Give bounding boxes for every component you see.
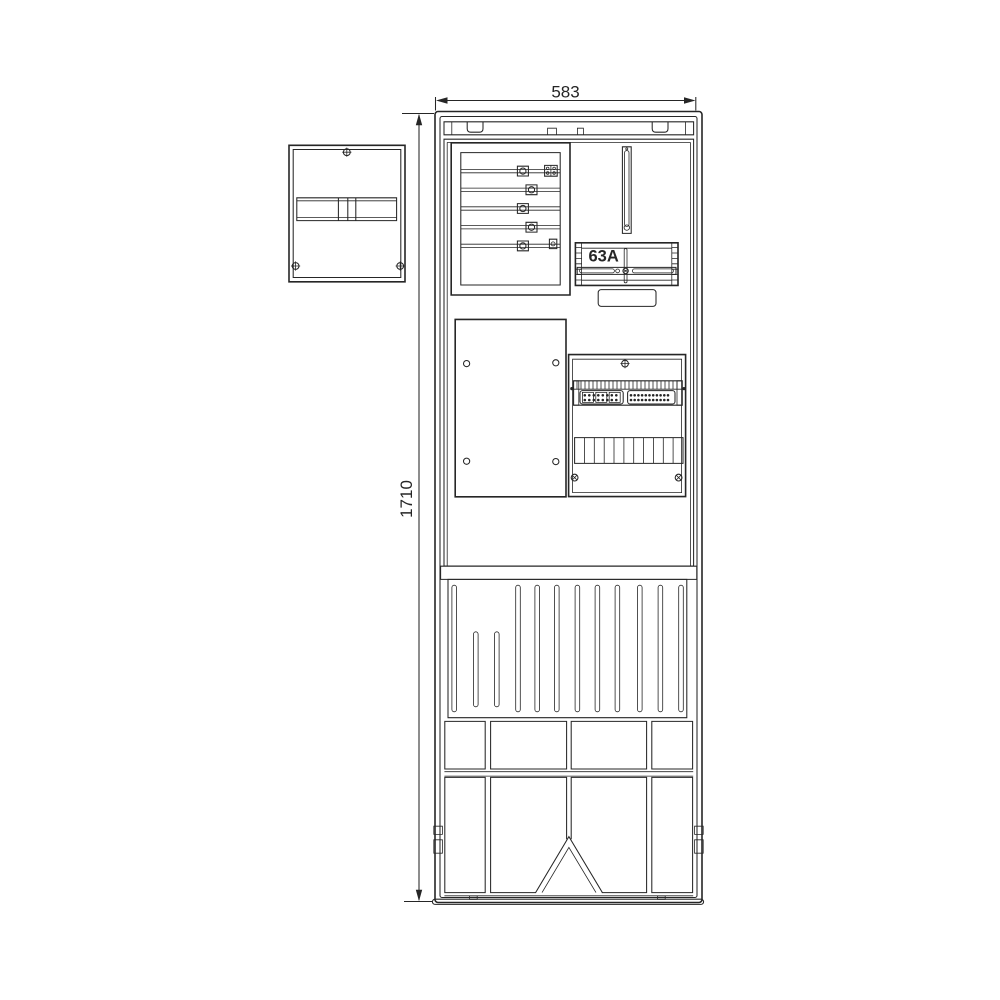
- top-band-center-steps: [548, 128, 584, 135]
- meter-window-slot: [622, 147, 631, 234]
- strip-mount-screw: [682, 387, 685, 390]
- actuator-pin: [616, 269, 620, 273]
- knockout-panel: [491, 721, 567, 769]
- height-dimension-label: 1710: [397, 480, 416, 518]
- knockout-panel: [445, 777, 485, 892]
- distribution-panel-inner: [573, 359, 682, 492]
- meter-cabinet-technical-drawing: 583 1710: [0, 0, 1000, 1000]
- vent-slot-short: [495, 632, 500, 707]
- top-band-ticks: [452, 122, 686, 135]
- vent-slot: [516, 585, 521, 712]
- mounting-plate: [455, 319, 566, 496]
- drawing-canvas: 583 1710: [0, 0, 1000, 1000]
- mounting-hole: [464, 361, 470, 367]
- vent-slot: [679, 585, 684, 712]
- width-dimension-label: 583: [551, 83, 579, 102]
- din-clamp-hole: [520, 168, 526, 174]
- distribution-panel-outer: [569, 355, 686, 497]
- top-profile-band: [444, 122, 694, 135]
- meter-cabinet: 63A: [432, 112, 703, 905]
- din-clamp-hole: [520, 205, 526, 211]
- din-window-inner-lines: [297, 201, 397, 218]
- terminal-comb-dividers: [585, 438, 674, 464]
- main-breaker-assembly: 63A: [575, 243, 678, 307]
- terminal-comb: [575, 438, 683, 464]
- vent-slot-short: [474, 632, 479, 707]
- slot-top-hole: [626, 148, 628, 150]
- din-window-dividers: [338, 198, 355, 221]
- actuator-center-dot: [625, 270, 627, 272]
- slot-outer: [622, 147, 631, 234]
- wall-box-inner-frame: [293, 150, 401, 278]
- meter-mounting-plate: [455, 319, 566, 496]
- din-window-outer: [297, 198, 397, 221]
- actuator-slot-left: [580, 269, 615, 273]
- slot-bottom-hole: [624, 225, 629, 230]
- vent-slot: [638, 585, 643, 712]
- height-arrow-down-icon: [416, 890, 422, 902]
- knockout-panel: [652, 777, 693, 892]
- mounting-hole: [464, 458, 470, 464]
- din-rail-panel: [451, 143, 570, 295]
- vent-slot: [535, 585, 540, 712]
- knockout-panel: [445, 721, 485, 769]
- distribution-panel: [569, 355, 686, 497]
- vent-top-band: [441, 566, 697, 579]
- strip-end-plate-left: [574, 381, 579, 405]
- vent-slot: [658, 585, 663, 712]
- strip-mount-screw: [570, 387, 573, 390]
- knockout-panel-center-right: [571, 777, 646, 892]
- breaker-lever: [624, 249, 627, 283]
- cabinet-inner-frame: [440, 117, 697, 898]
- actuator-slot-right: [632, 269, 673, 273]
- breaker-rating-label: 63A: [589, 248, 619, 266]
- connector-hole: [553, 167, 556, 170]
- wall-mounted-box: [289, 145, 405, 281]
- din-rails: [461, 169, 560, 247]
- connector-hole: [546, 167, 549, 170]
- width-arrow-left-icon: [436, 97, 448, 103]
- connector-block-right: [628, 391, 675, 404]
- cable-entry-triangle-outer: [536, 837, 603, 893]
- height-dimension: 1710: [397, 114, 434, 902]
- breaker-sub-cover: [598, 290, 656, 307]
- din-clamp-hole: [528, 187, 534, 193]
- wall-box-outer-frame: [289, 145, 405, 281]
- knockout-divider-band: [444, 772, 693, 776]
- vent-slot: [452, 585, 457, 712]
- knockout-panel-center-left: [491, 777, 567, 892]
- din-clamp-hole: [528, 224, 534, 230]
- cabinet-outer-frame: [435, 112, 702, 903]
- mounting-hole: [553, 360, 559, 366]
- knockout-panel: [652, 721, 693, 769]
- top-band-rect: [444, 122, 694, 135]
- vent-slot: [555, 585, 560, 712]
- screw-x-marks: [676, 475, 681, 480]
- top-band-notch-right: [652, 122, 668, 132]
- din-clamp-hole: [520, 243, 526, 249]
- height-arrow-up-icon: [416, 114, 422, 126]
- cable-entry-triangle-inner: [542, 847, 596, 892]
- knockout-section: [432, 721, 703, 904]
- knockout-panel: [571, 721, 646, 769]
- ventilation-section: [441, 566, 697, 718]
- terminal-strip-hatch: [577, 381, 677, 389]
- vent-slot: [575, 585, 580, 712]
- vent-area: [448, 579, 687, 717]
- slot-inner: [625, 151, 629, 227]
- top-band-notch-left: [467, 122, 483, 132]
- width-dimension: 583: [436, 83, 696, 111]
- interior-recess: [444, 139, 694, 566]
- vent-slot: [595, 585, 600, 712]
- vent-slot: [615, 585, 620, 712]
- connector-cluster: [609, 392, 620, 402]
- mounting-hole: [553, 459, 559, 465]
- width-arrow-right-icon: [684, 97, 696, 103]
